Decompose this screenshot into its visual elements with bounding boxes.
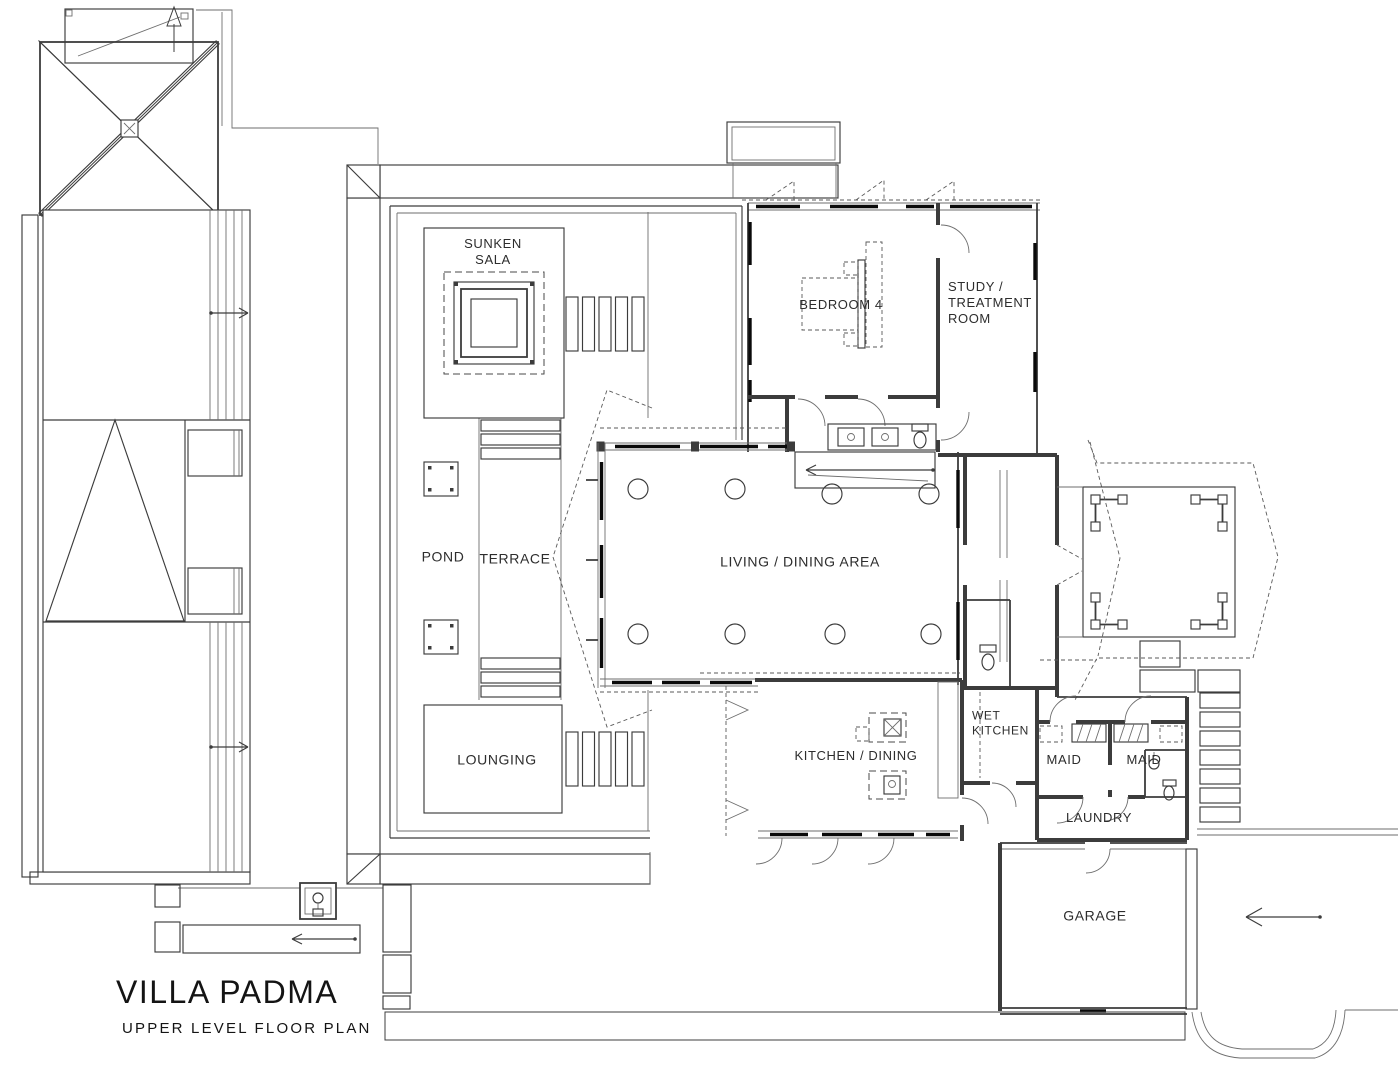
- title-block: VILLA PADMA UPPER LEVEL FLOOR PLAN: [116, 974, 372, 1037]
- label-wet-kitchen: WET KITCHEN: [972, 708, 1029, 737]
- label-terrace: TERRACE: [479, 550, 550, 567]
- label-laundry: LAUNDRY: [1066, 810, 1132, 826]
- floor-plan-page: SUNKEN SALABEDROOM 4STUDY / TREATMENT RO…: [0, 0, 1398, 1071]
- page-subtitle: UPPER LEVEL FLOOR PLAN: [122, 1020, 372, 1037]
- label-lounging: LOUNGING: [457, 751, 536, 768]
- label-maid-1: MAID: [1047, 752, 1082, 768]
- label-bedroom-4: BEDROOM 4: [799, 297, 882, 313]
- label-study-treatment-room: STUDY / TREATMENT ROOM: [948, 279, 1032, 327]
- room-labels-layer: SUNKEN SALABEDROOM 4STUDY / TREATMENT RO…: [0, 0, 1398, 1071]
- label-pond: POND: [422, 548, 465, 565]
- label-maid-2: MAID: [1127, 752, 1162, 768]
- label-kitchen-dining: KITCHEN / DINING: [795, 748, 918, 764]
- page-title: VILLA PADMA: [116, 974, 372, 1011]
- label-living-dining-area: LIVING / DINING AREA: [720, 553, 880, 570]
- label-garage: GARAGE: [1063, 907, 1127, 924]
- label-sunken-sala: SUNKEN SALA: [464, 236, 522, 268]
